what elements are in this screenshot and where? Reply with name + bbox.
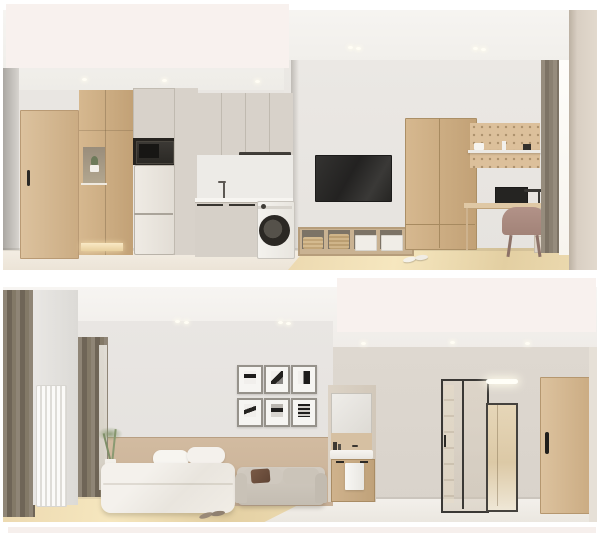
cabinet-handle bbox=[336, 461, 344, 463]
picture-frame bbox=[264, 365, 290, 394]
shelf-item-cylinder bbox=[502, 141, 506, 150]
storage-box bbox=[381, 235, 403, 251]
picture-frame bbox=[291, 398, 317, 427]
mirror-reflection-line bbox=[497, 405, 498, 506]
bed-fold-line bbox=[103, 483, 233, 485]
upper-cabinet-seam bbox=[221, 93, 222, 155]
mirror-cabinet bbox=[331, 393, 372, 435]
picture-frame bbox=[291, 365, 317, 394]
sofa-arm bbox=[235, 473, 247, 503]
ceiling-spotlight bbox=[525, 342, 530, 345]
base-cabinets bbox=[195, 202, 257, 257]
upper-cabinet-seam bbox=[245, 93, 246, 155]
washer-dial bbox=[261, 204, 266, 209]
sink-faucet-icon bbox=[223, 182, 225, 198]
floor-mirror bbox=[486, 403, 518, 512]
frame-art bbox=[244, 371, 256, 384]
ceiling-spotlight bbox=[356, 47, 361, 50]
window bbox=[559, 60, 569, 255]
tall-cabinet-upper bbox=[133, 88, 176, 140]
glass-door-handle bbox=[444, 435, 446, 447]
niche-shelf bbox=[81, 183, 107, 185]
ceiling-spotlight bbox=[473, 47, 478, 50]
washer-door bbox=[259, 215, 290, 246]
microwave-window bbox=[139, 144, 159, 158]
shoe-cabinet-seam bbox=[105, 90, 106, 255]
ceiling-spotlight bbox=[175, 320, 180, 323]
fridge bbox=[134, 165, 175, 255]
backsplash bbox=[197, 155, 293, 198]
picture-frame bbox=[237, 398, 263, 427]
ceiling-spotlight bbox=[286, 322, 291, 325]
door-handle-icon bbox=[545, 432, 549, 454]
vanity-sink bbox=[330, 450, 373, 459]
picture-frame bbox=[264, 398, 290, 427]
wardrobe-seam bbox=[439, 118, 440, 248]
ceiling-spotlight bbox=[450, 341, 455, 344]
ceiling-spotlight bbox=[162, 79, 167, 82]
desk-leg bbox=[466, 208, 468, 250]
ceiling-spotlight bbox=[361, 342, 366, 345]
wicker-basket bbox=[303, 237, 323, 249]
sink-faucet-icon bbox=[352, 445, 358, 447]
radiator bbox=[36, 385, 67, 507]
led-wall-light bbox=[486, 379, 518, 384]
shoe-cabinet-seam bbox=[79, 130, 133, 131]
wardrobe-drawer-line bbox=[405, 224, 475, 225]
ceiling-spotlight bbox=[184, 321, 189, 324]
base-cabinet-handle bbox=[197, 204, 223, 206]
sofa-pillow bbox=[251, 468, 271, 483]
upper-cabinet-seam bbox=[269, 93, 270, 155]
plant-leaves-icon bbox=[97, 427, 123, 441]
overlay-block-top-left bbox=[6, 4, 289, 68]
wall-shelf bbox=[468, 150, 544, 153]
sofa-back-cushion bbox=[283, 468, 319, 484]
right-wall-sliver bbox=[589, 347, 597, 522]
curtain bbox=[541, 60, 559, 253]
overlay-band-bottom bbox=[8, 527, 596, 533]
sofa-arm bbox=[315, 473, 327, 503]
curtains bbox=[3, 290, 35, 517]
shelf-item-box bbox=[474, 143, 484, 150]
niche-plant-icon bbox=[91, 156, 98, 165]
frame-art bbox=[271, 371, 283, 384]
frame-art bbox=[298, 371, 310, 384]
toe-kick-light bbox=[81, 243, 123, 251]
towel bbox=[345, 463, 364, 490]
right-wall-column bbox=[569, 10, 597, 270]
frame-art bbox=[271, 404, 283, 417]
base-cabinet-handle bbox=[229, 204, 255, 206]
wicker-basket bbox=[329, 234, 349, 249]
frame-art bbox=[244, 404, 256, 417]
niche-pot bbox=[90, 165, 99, 172]
tv bbox=[315, 155, 392, 202]
left-wall-return bbox=[3, 68, 19, 254]
fridge-divider bbox=[134, 213, 173, 215]
ceiling-spotlight bbox=[278, 321, 283, 324]
sink-faucet-spout bbox=[218, 181, 226, 183]
ceiling-spotlight bbox=[481, 48, 486, 51]
ceiling-spotlight bbox=[82, 78, 87, 81]
shelf-item-dark bbox=[523, 144, 531, 150]
storage-box bbox=[355, 235, 377, 251]
screenshot-canvas bbox=[0, 0, 600, 533]
ceiling-spotlight bbox=[348, 46, 353, 49]
frame-art bbox=[298, 404, 310, 417]
bed-duvet bbox=[101, 463, 235, 513]
glass-door-stile bbox=[462, 379, 464, 509]
picture-frame bbox=[237, 365, 263, 394]
bed-pillow bbox=[187, 447, 225, 464]
door-handle-icon bbox=[27, 170, 30, 186]
overlay-block-bottom-right bbox=[337, 278, 596, 332]
ceiling-spotlight bbox=[255, 80, 260, 83]
